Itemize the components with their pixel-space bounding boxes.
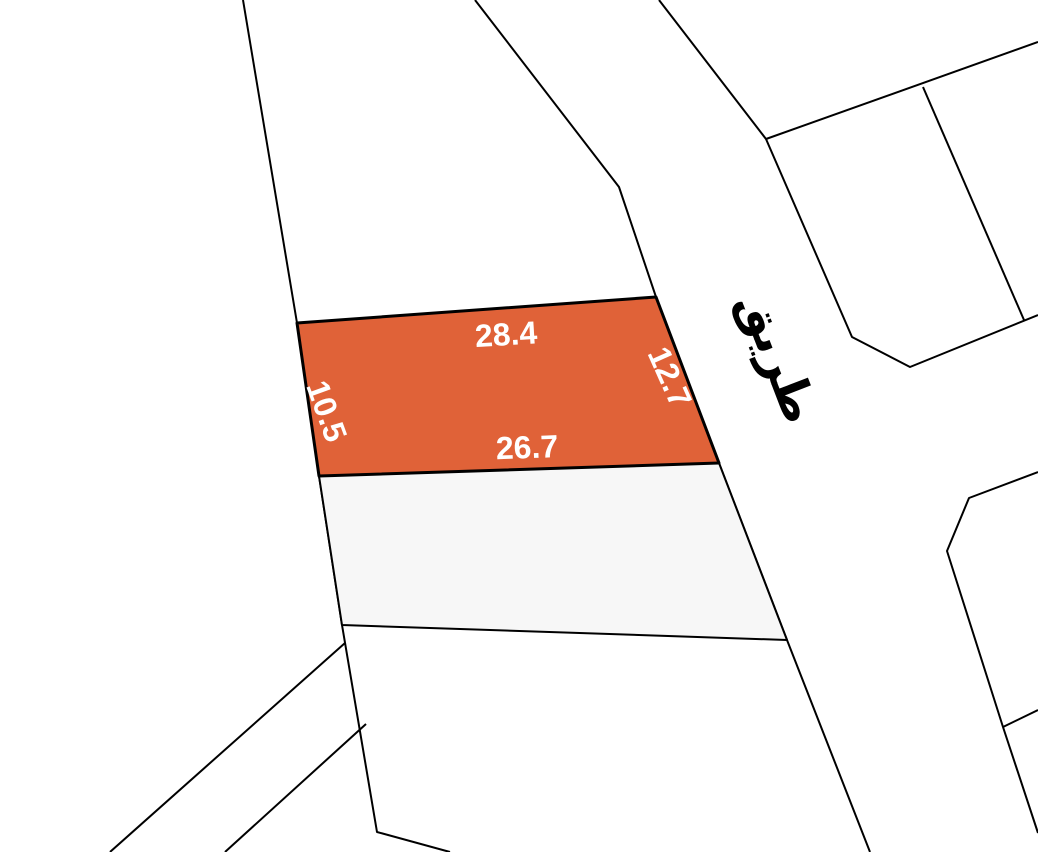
southwest-diagonal-boundary-1 [110, 643, 345, 852]
dimension-label-bottom: 26.7 [495, 428, 558, 466]
southeast-branch-boundary [1003, 710, 1038, 727]
cadastral-map-viewport[interactable]: 28.4 12.7 26.7 10.5 طريق [0, 0, 1038, 852]
northeast-diagonal-boundary [766, 42, 1038, 139]
cadastral-map-canvas: 28.4 12.7 26.7 10.5 طريق [0, 0, 1038, 852]
southwest-diagonal-boundary-2 [225, 724, 366, 852]
southeast-parcel-boundary [947, 472, 1038, 833]
road-right-edge [659, 0, 1038, 367]
neighbor-parcel[interactable] [319, 463, 787, 640]
northeast-branch-boundary [923, 87, 1024, 320]
road-name-label: طريق [728, 284, 829, 431]
dimension-label-top: 28.4 [474, 314, 539, 354]
